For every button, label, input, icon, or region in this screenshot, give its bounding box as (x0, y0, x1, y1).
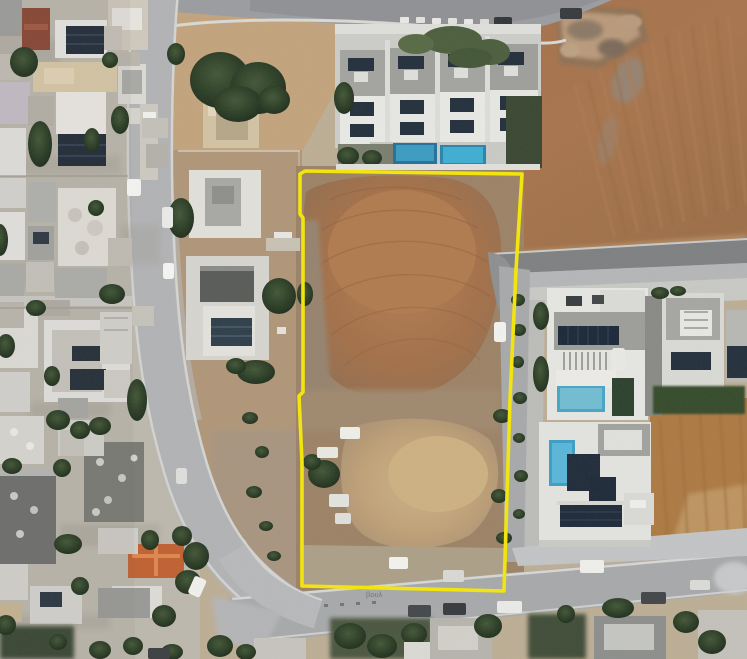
svg-text:βουλ: βουλ (366, 590, 383, 599)
